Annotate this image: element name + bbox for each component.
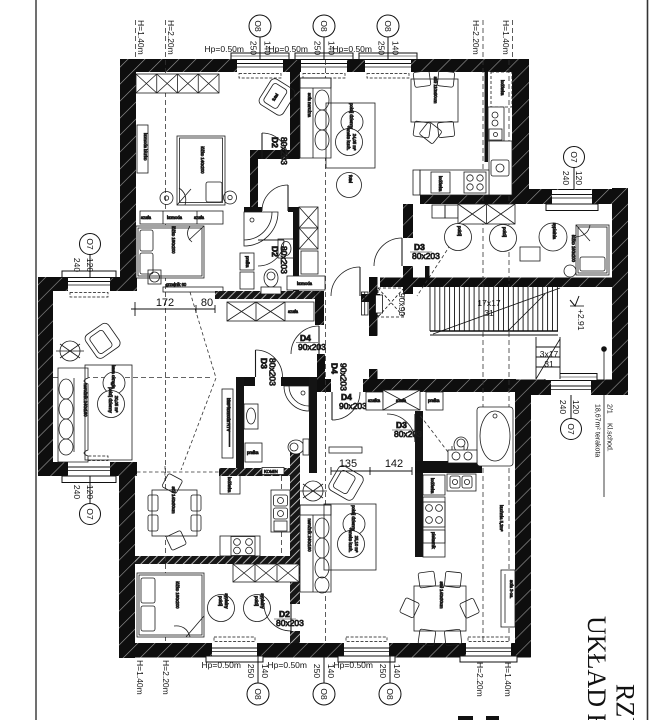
svg-text:H=1.40m: H=1.40m [136, 20, 146, 55]
svg-text:O7: O7 [569, 151, 579, 163]
svg-text:140: 140 [391, 41, 401, 55]
svg-text:pralka: pralka [247, 450, 259, 455]
svg-text:pralka: pralka [428, 398, 440, 403]
svg-text:250: 250 [378, 664, 388, 678]
svg-text:łóżko 140x200: łóżko 140x200 [200, 146, 205, 174]
svg-text:80: 80 [201, 297, 213, 309]
svg-text:O8: O8 [253, 20, 263, 32]
svg-text:łóżko 160x200: łóżko 160x200 [571, 235, 576, 263]
svg-text:240: 240 [72, 258, 82, 272]
svg-text:2/1: 2/1 [606, 404, 613, 414]
svg-text:Hp=0.50m: Hp=0.50m [205, 44, 244, 54]
svg-text:lodówka: lodówka [227, 477, 232, 493]
svg-text:pokój: pokój [254, 596, 259, 606]
svg-text:O8: O8 [253, 688, 263, 700]
svg-text:H=2.20m: H=2.20m [161, 660, 171, 695]
svg-text:Kl.schod.: Kl.schod. [606, 423, 613, 452]
svg-text:Hp=0.50m: Hp=0.50m [333, 44, 372, 54]
svg-text:RZUT: RZUT [611, 684, 640, 720]
svg-text:240: 240 [558, 400, 568, 414]
svg-text:31: 31 [544, 359, 554, 369]
svg-text:ława okrągła: ława okrągła [111, 365, 116, 389]
svg-text:O8: O8 [319, 20, 329, 32]
svg-text:komoda: komoda [167, 215, 183, 220]
svg-text:3x17: 3x17 [540, 349, 559, 359]
svg-text:80x203: 80x203 [394, 429, 422, 439]
svg-text:O7: O7 [85, 508, 95, 520]
svg-text:KOMIN: KOMIN [264, 469, 278, 474]
svg-text:80x203: 80x203 [279, 246, 289, 274]
svg-text:H=1.40m: H=1.40m [503, 662, 513, 697]
svg-text:łóżko 160x200: łóżko 160x200 [171, 226, 176, 254]
svg-text:120: 120 [574, 171, 584, 185]
svg-text:szafa: szafa [194, 215, 205, 220]
svg-text:blat+komoda RTV: blat+komoda RTV [226, 398, 231, 432]
svg-text:łóżko 160x200: łóżko 160x200 [175, 581, 180, 609]
svg-text:20,05 m²: 20,05 m² [114, 396, 119, 413]
svg-text:H=2.20m: H=2.20m [166, 20, 176, 55]
svg-text:lodówka: lodówka [438, 176, 443, 192]
svg-text:narożnik 240x160: narożnik 240x160 [83, 383, 88, 417]
svg-text:+aneks kuch.: +aneks kuch. [346, 126, 351, 151]
svg-text:80x203: 80x203 [268, 358, 278, 386]
svg-text:90x90: 90x90 [397, 293, 407, 316]
svg-text:H=2.20m: H=2.20m [475, 662, 485, 697]
svg-text:H=2.20m: H=2.20m [471, 20, 481, 55]
svg-text:lodówka: lodówka [500, 80, 505, 96]
svg-text:172: 172 [156, 297, 174, 309]
svg-text:D2: D2 [270, 137, 280, 148]
svg-text:Hp=0.50m: Hp=0.50m [269, 44, 308, 54]
svg-text:kuchnia 5,2m²: kuchnia 5,2m² [499, 505, 504, 532]
svg-text:80x203: 80x203 [276, 618, 304, 628]
svg-text:+2.91: +2.91 [576, 309, 586, 331]
svg-text:stół 140x80cm: stół 140x80cm [171, 487, 176, 515]
svg-text:narożnik 240x160: narożnik 240x160 [307, 518, 312, 552]
svg-text:+aneks kuch.: +aneks kuch. [348, 528, 353, 553]
svg-text:fotel: fotel [348, 175, 353, 183]
svg-text:D3: D3 [259, 358, 269, 369]
svg-text:szafa: szafa [288, 309, 299, 314]
svg-text:szafka: szafka [368, 398, 381, 403]
svg-text:Hp=0.50m: Hp=0.50m [268, 660, 307, 670]
svg-text:250: 250 [246, 664, 256, 678]
svg-text:szafa: szafa [396, 398, 407, 403]
svg-text:pralka: pralka [245, 256, 250, 268]
svg-text:pokój dzienny: pokój dzienny [108, 387, 113, 414]
svg-text:D2: D2 [270, 246, 280, 257]
svg-text:120: 120 [571, 400, 581, 414]
svg-text:140: 140 [392, 664, 402, 678]
svg-text:25,10 m²: 25,10 m² [354, 536, 359, 553]
svg-text:17x17: 17x17 [477, 298, 500, 308]
svg-text:31: 31 [484, 308, 494, 318]
svg-text:250: 250 [313, 41, 323, 55]
svg-text:90x203: 90x203 [298, 342, 326, 352]
svg-text:komoda: komoda [297, 281, 313, 286]
svg-text:H=1.40m: H=1.40m [135, 660, 145, 695]
svg-text:stół 110x90cm: stół 110x90cm [433, 77, 438, 104]
svg-text:sofa 3-os.: sofa 3-os. [509, 580, 514, 598]
svg-text:240: 240 [561, 171, 571, 185]
svg-text:250: 250 [377, 41, 387, 55]
svg-text:O8: O8 [385, 688, 395, 700]
svg-text:H=1.40m: H=1.40m [501, 20, 511, 55]
svg-text:pokój: pokój [457, 226, 462, 236]
svg-text:pokój: pokój [502, 227, 507, 237]
svg-text:80x203: 80x203 [279, 137, 289, 165]
svg-text:Hp=0.50m: Hp=0.50m [334, 660, 373, 670]
svg-text:stół 140x80cm: stół 140x80cm [439, 582, 444, 610]
svg-text:Hp=0.50m: Hp=0.50m [202, 660, 241, 670]
svg-text:250: 250 [249, 41, 259, 55]
svg-text:grzejnik 60: grzejnik 60 [166, 282, 187, 287]
svg-text:pokój: pokój [218, 596, 223, 606]
svg-text:piekarnik: piekarnik [431, 532, 436, 550]
svg-text:80x203: 80x203 [412, 251, 440, 261]
svg-text:sypialnia: sypialnia [552, 223, 557, 240]
svg-text:sypialny: sypialny [224, 593, 229, 609]
svg-text:90x203: 90x203 [339, 363, 349, 391]
svg-text:UKŁAD FUN: UKŁAD FUN [582, 616, 611, 720]
svg-text:250: 250 [312, 664, 322, 678]
svg-text:120: 120 [85, 485, 95, 499]
svg-text:komoda biurko: komoda biurko [143, 133, 148, 161]
svg-text:D4: D4 [330, 363, 340, 374]
svg-text:O8: O8 [319, 688, 329, 700]
svg-text:terakota: terakota [594, 432, 601, 457]
svg-text:90x203: 90x203 [339, 401, 367, 411]
svg-text:lodówka: lodówka [430, 478, 435, 494]
svg-text:240: 240 [72, 485, 82, 499]
svg-text:142: 142 [385, 458, 403, 470]
svg-text:24,05 m²: 24,05 m² [352, 134, 357, 151]
svg-text:szafa: szafa [141, 215, 152, 220]
svg-text:18,67m²: 18,67m² [594, 404, 601, 430]
svg-text:O8: O8 [383, 20, 393, 32]
svg-text:120: 120 [85, 258, 95, 272]
svg-text:sofa narożna: sofa narożna [307, 93, 312, 118]
svg-text:O7: O7 [566, 423, 576, 435]
svg-text:O7: O7 [85, 238, 95, 250]
